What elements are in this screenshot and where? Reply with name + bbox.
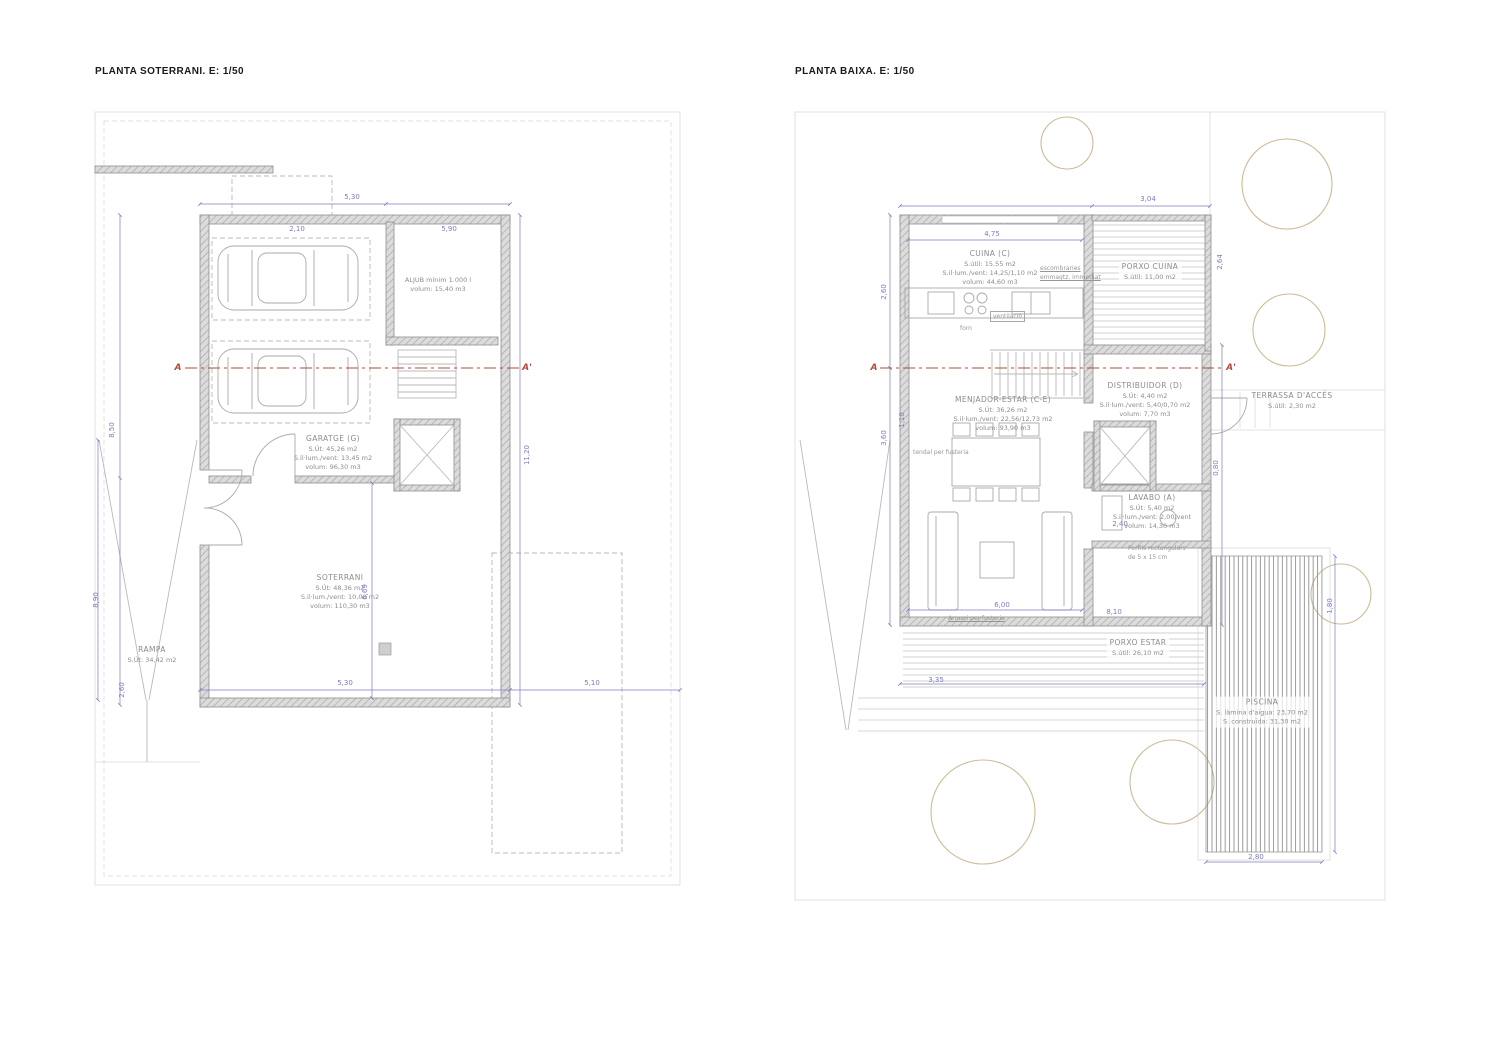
room-name: PISCINA xyxy=(1216,698,1308,709)
room-line: S.Út: 4,40 m2 xyxy=(1100,392,1191,401)
room-label-aljub: ALJUB mínim 1.000 l volum: 15,40 m3 xyxy=(405,276,471,294)
room-line: volum: 44,60 m3 xyxy=(943,278,1038,287)
room-name: MENJADOR-ESTAR (C-E) xyxy=(953,395,1052,406)
room-line: S.Út: 34,42 m2 xyxy=(128,656,177,665)
dining-table-and-chairs xyxy=(952,423,1040,501)
dimension-label: 11,20 xyxy=(523,445,531,465)
room-line: S.Út: 36,26 m2 xyxy=(953,406,1052,415)
dimension-label: 5,30 xyxy=(344,193,360,201)
section-mark-a-right: A xyxy=(871,363,878,373)
note-forn: forn xyxy=(960,324,972,333)
room-label-piscina: PISCINA S. làmina d'aigua: 23,70 m2 S. c… xyxy=(1213,697,1311,728)
architectural-drawing-sheet: { "colors": { "paper": "#ffffff", "line"… xyxy=(0,0,1500,1059)
dimension-label: 5,90 xyxy=(441,225,457,233)
room-name: RAMPA xyxy=(128,645,177,656)
room-label-porxo-cuina: PORXO CUINA S.útil: 11,00 m2 xyxy=(1119,261,1182,283)
room-line: volum: 7,70 m3 xyxy=(1100,410,1191,419)
basement-elevator xyxy=(400,425,454,485)
basement-plan-drawing xyxy=(95,112,680,885)
room-name: PORXO ESTAR xyxy=(1110,638,1167,649)
dimension-label: 3,35 xyxy=(928,676,944,684)
room-line: S.il·lum./vent: 13,45 m2 xyxy=(294,454,372,463)
ground-elevator xyxy=(1100,427,1150,485)
dimension-label: 0,80 xyxy=(1212,460,1220,476)
room-name: CUINA (C) xyxy=(943,249,1038,260)
room-line: volum: 96,30 m3 xyxy=(294,463,372,472)
room-line: S.útil: 26,10 m2 xyxy=(1110,649,1167,658)
section-mark-a-prime-left: A' xyxy=(522,363,532,373)
note-armari: Armari per fusteria xyxy=(948,614,1005,623)
room-name: LAVABO (A) xyxy=(1113,493,1191,504)
note-line: de 5 x 15 cm xyxy=(1128,553,1186,562)
dimension-label: 2,40 xyxy=(1112,520,1128,528)
note-line: escombraries xyxy=(1040,264,1101,273)
room-label-porxo-estar: PORXO ESTAR S.útil: 26,10 m2 xyxy=(1107,637,1170,659)
room-line: S.Út: 5,40 m2 xyxy=(1113,504,1191,513)
dimension-label: 6,00 xyxy=(994,601,1010,609)
basement-doors xyxy=(204,434,295,545)
dimension-label: 3,04 xyxy=(1140,195,1156,203)
room-line: S. làmina d'aigua: 23,70 m2 xyxy=(1216,708,1308,717)
dimension-label: 5,30 xyxy=(337,679,353,687)
room-line: S.il·lum./vent: 22,56/12,73 m2 xyxy=(953,415,1052,424)
note-line: Armari per fusteria xyxy=(948,615,1005,622)
room-label-rampa: RAMPA S.Út: 34,42 m2 xyxy=(128,645,177,665)
sofas-and-coffee-table xyxy=(928,512,1072,610)
room-label-distribuidor: DISTRIBUIDOR (D) S.Út: 4,40 m2 S.il·lum.… xyxy=(1100,381,1191,419)
room-line: S.útil: 11,00 m2 xyxy=(1122,273,1179,282)
room-line: ALJUB mínim 1.000 l xyxy=(405,276,471,285)
dimension-label: 3,60 xyxy=(880,430,888,446)
basement-pillar xyxy=(379,643,391,655)
dimension-label: 8,90 xyxy=(92,592,100,608)
note-ventilacio: ventilació xyxy=(990,311,1025,322)
dimension-label: 8,50 xyxy=(108,422,116,438)
note-tendal: tendal per fusteria xyxy=(913,448,969,457)
floor-plan-linework xyxy=(0,0,1500,1059)
right-plan-title: PLANTA BAIXA. E: 1/50 xyxy=(795,66,915,77)
dimension-label: 6,69 xyxy=(361,584,369,600)
dimension-label: 8,10 xyxy=(1106,608,1122,616)
dimension-label: 4,75 xyxy=(984,230,1000,238)
dimension-label: 2,60 xyxy=(880,284,888,300)
room-label-cuina: CUINA (C) S.útil: 15,55 m2 S.il·lum./ven… xyxy=(943,249,1038,287)
room-line: S.útil: 2,30 m2 xyxy=(1252,402,1333,411)
dimension-label: 2,60 xyxy=(118,682,126,698)
room-line: volum: 15,40 m3 xyxy=(405,285,471,294)
ground-stairs xyxy=(990,350,1090,398)
dimension-label: 1,80 xyxy=(1326,598,1334,614)
dimension-label: 2,10 xyxy=(289,225,305,233)
basement-stairs xyxy=(398,350,456,398)
room-name: PORXO CUINA xyxy=(1122,262,1179,273)
room-name: GARATGE (G) xyxy=(294,434,372,445)
parked-cars xyxy=(212,238,370,423)
dimension-label: 2,64 xyxy=(1216,254,1224,270)
note-line: ventilació xyxy=(990,311,1025,322)
note-perfils: Perfils rectangulars de 5 x 15 cm xyxy=(1128,544,1186,562)
dimension-label: 5,10 xyxy=(584,679,600,687)
room-line: S.útil: 15,55 m2 xyxy=(943,260,1038,269)
room-name: TERRASSA D'ACCÉS xyxy=(1252,391,1333,402)
note-line: forn xyxy=(960,325,972,332)
section-mark-a-prime-right: A' xyxy=(1226,363,1236,373)
room-line: S.il·lum./vent: 5,40/0,70 m2 xyxy=(1100,401,1191,410)
room-line: S.Út: 45,26 m2 xyxy=(294,445,372,454)
section-mark-a-left: A xyxy=(175,363,182,373)
left-plan-title: PLANTA SOTERRANI. E: 1/50 xyxy=(95,66,244,77)
ground-floor-plan-drawing xyxy=(795,112,1385,900)
room-line: volum: 93,90 m3 xyxy=(953,424,1052,433)
room-label-terrassa-acces: TERRASSA D'ACCÉS S.útil: 2,30 m2 xyxy=(1252,391,1333,411)
room-label-menjador-estar: MENJADOR-ESTAR (C-E) S.Út: 36,26 m2 S.il… xyxy=(953,395,1052,433)
note-line: Perfils rectangulars xyxy=(1128,544,1186,553)
room-name: DISTRIBUIDOR (D) xyxy=(1100,381,1191,392)
note-line: tendal per fusteria xyxy=(913,449,969,456)
room-line: S.il·lum./vent: 14,25/1,10 m2 xyxy=(943,269,1038,278)
note-line: emmagtz. immediat xyxy=(1040,273,1101,282)
room-line: S. construïda: 31,30 m2 xyxy=(1216,717,1308,726)
room-line: volum: 110,30 m3 xyxy=(301,602,379,611)
room-name: SOTERRANI xyxy=(301,573,379,584)
dimension-label: 1,10 xyxy=(898,412,906,428)
basement-ramp xyxy=(99,440,197,762)
note-escombraries: escombraries emmagtz. immediat xyxy=(1040,264,1101,282)
room-label-garatge: GARATGE (G) S.Út: 45,26 m2 S.il·lum./ven… xyxy=(294,434,372,472)
dimension-label: 2,80 xyxy=(1248,853,1264,861)
